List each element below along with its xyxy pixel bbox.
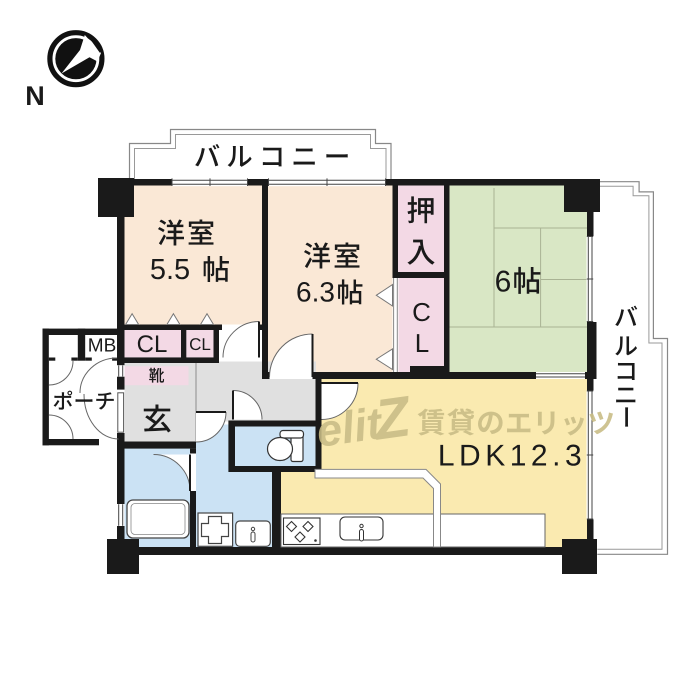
svg-text:6: 6 bbox=[495, 266, 512, 299]
svg-text:6.3: 6.3 bbox=[296, 277, 335, 308]
svg-text:LDK12.3: LDK12.3 bbox=[438, 440, 586, 473]
svg-text:L: L bbox=[415, 328, 429, 358]
svg-text:C: C bbox=[412, 297, 431, 327]
svg-text:5.5: 5.5 bbox=[150, 254, 190, 286]
svg-text:CL: CL bbox=[189, 335, 211, 354]
svg-text:CL: CL bbox=[137, 331, 168, 358]
svg-text:MB: MB bbox=[88, 336, 117, 357]
svg-text:N: N bbox=[25, 81, 45, 111]
